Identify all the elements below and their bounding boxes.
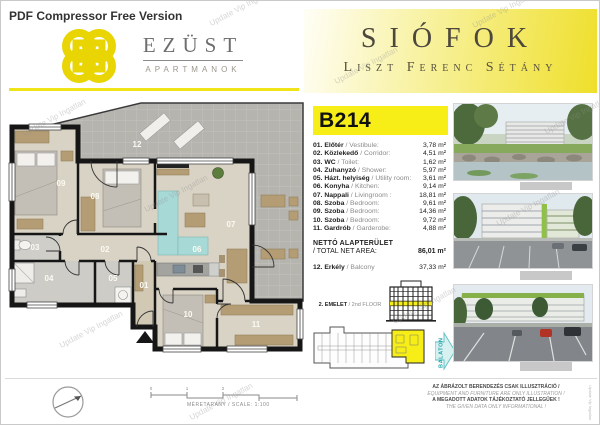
room-name-en: / Garderobe: <box>351 225 391 232</box>
photo-street-render <box>453 284 593 362</box>
scale-bar: 0 1 2 MÉRETARÁNY / SCALE: 1:100 <box>147 383 309 409</box>
room-row: 11. Gardrób / Garderobe: 4,88 m² <box>313 225 448 233</box>
room-name-hu: WC <box>322 159 335 166</box>
brand-subtitle: APARTMANOK <box>133 65 253 74</box>
floor-plan: 01 02 03 04 05 06 07 08 09 10 11 12 <box>5 99 312 376</box>
room-name-en: / Corridor: <box>358 150 390 157</box>
footer-divider <box>5 378 597 379</box>
svg-text:02: 02 <box>101 245 110 254</box>
room-name-en: / Kitchen: <box>349 183 379 190</box>
svg-text:04: 04 <box>45 274 54 283</box>
brand-knot-logo-icon <box>56 21 122 91</box>
room-name-hu: Szoba <box>322 217 344 224</box>
disclaimer-line: A MEGADOTT ADATOK TÁJÉKOZTATÓ JELLEGŰEK … <box>421 397 571 404</box>
room-area: 1,62 m² <box>423 159 448 167</box>
room-name-hu: Konyha <box>322 183 349 190</box>
room-name-hu: Szoba <box>322 208 344 215</box>
room-name-hu: Házt. helyiség <box>322 175 369 182</box>
room-name-en: / Shower: <box>356 167 387 174</box>
balcony-name-hu: Erkély <box>322 264 344 271</box>
floor-indicator: 2. EMELET / 2nd FLOOR <box>317 302 383 308</box>
room-area: 3,61 m² <box>423 175 448 183</box>
net-area-label-hu: NETTÓ ALAPTERÜLET <box>313 240 448 247</box>
svg-text:07: 07 <box>227 220 236 229</box>
location-header: SIÓFOK Liszt Ferenc Sétány <box>304 9 597 93</box>
city-title: SIÓFOK <box>304 23 597 55</box>
scale-label: MÉRETARÁNY / SCALE: 1:100 <box>187 401 270 408</box>
room-row: 08. Szoba / Bedroom: 9,61 m² <box>313 200 448 208</box>
balaton-label: BALATON <box>439 337 445 368</box>
photo-caption-bar <box>520 362 572 371</box>
room-area: 5,97 m² <box>423 167 448 175</box>
room-area: 4,51 m² <box>423 150 448 158</box>
room-name-en: / Bedroom: <box>344 208 379 215</box>
svg-text:10: 10 <box>184 310 193 319</box>
net-area-block: NETTÓ ALAPTERÜLET / TOTAL NET AREA: 86,0… <box>313 240 448 255</box>
photo-parking-render <box>453 193 593 269</box>
scale-tick: 1 <box>186 386 189 391</box>
net-area-value: 86,01 m² <box>418 248 448 255</box>
room-name-hu: Szoba <box>322 200 344 207</box>
room-row: 03. WC / Toilet: 1,62 m² <box>313 159 448 167</box>
room-name-en: / Bedroom: <box>344 217 379 224</box>
room-name-en: / Bedroom: <box>344 200 379 207</box>
room-row: 10. Szoba / Bedroom: 9,72 m² <box>313 217 448 225</box>
balcony-area: 37,33 m² <box>419 264 448 272</box>
room-row: 06. Konyha / Kitchen: 9,14 m² <box>313 183 448 191</box>
floor-key-plan <box>312 321 436 377</box>
street-subtitle: Liszt Ferenc Sétány <box>304 60 597 76</box>
header-divider <box>9 88 299 91</box>
svg-text:08: 08 <box>91 192 100 201</box>
balcony-row: 12. Erkély / Balcony 37,33 m² <box>313 264 448 272</box>
balcony-name-en: / Balcony <box>345 264 375 271</box>
room-area: 9,61 m² <box>423 200 448 208</box>
room-list: 01. Előtér / Vestibule: 3,78 m² 02. Közl… <box>313 142 448 233</box>
room-row: 05. Házt. helyiség / Utility room: 3,61 … <box>313 175 448 183</box>
room-name-hu: Zuhanyzó <box>322 167 356 174</box>
room-area: 9,72 m² <box>423 217 448 225</box>
svg-text:03: 03 <box>31 243 40 252</box>
net-area-label-en: / TOTAL NET AREA: <box>313 248 377 255</box>
room-name-en: / Livingroom : <box>349 192 392 199</box>
disclaimer: AZ ÁBRÁZOLT BERENDEZÉS CSAK ILLUSZTRÁCIÓ… <box>421 384 571 410</box>
unit-id-badge: B214 <box>313 106 448 135</box>
room-name-hu: Gardrób <box>322 225 351 232</box>
room-area: 14,36 m² <box>419 208 448 216</box>
room-name-en: / Vestibule: <box>344 142 379 149</box>
room-row: 07. Nappali / Livingroom : 18,81 m² <box>313 192 448 200</box>
room-area: 18,81 m² <box>419 192 448 200</box>
photo-lakeside-render <box>453 103 593 181</box>
room-row: 02. Közlekedő / Corridor: 4,51 m² <box>313 150 448 158</box>
photo-caption-bar <box>520 182 572 190</box>
floor-label-en: / 2nd FLOOR <box>347 302 381 308</box>
svg-text:01: 01 <box>140 281 149 290</box>
svg-text:12: 12 <box>133 140 142 149</box>
disclaimer-line: THE GIVEN DATA ONLY INFORMATIONAL ! <box>421 404 571 411</box>
svg-text:06: 06 <box>193 245 202 254</box>
building-elevation-sketch <box>384 278 438 324</box>
plan-entrance-arrow <box>136 331 154 343</box>
room-row: 01. Előtér / Vestibule: 3,78 m² <box>313 142 448 150</box>
scale-tick: 2 <box>222 386 225 391</box>
room-name-hu: Előtér <box>322 142 343 149</box>
disclaimer-line: AZ ÁBRÁZOLT BERENDEZÉS CSAK ILLUSZTRÁCIÓ… <box>421 384 571 391</box>
room-area: 3,78 m² <box>423 142 448 150</box>
svg-text:09: 09 <box>57 179 66 188</box>
brochure-page: Update Vip Ingatlan Update Vip Ingatlan … <box>0 0 600 425</box>
unit-info-panel: B214 01. Előtér / Vestibule: 3,78 m² 02.… <box>313 106 448 273</box>
floor-label-hu: 2. EMELET <box>319 302 347 308</box>
room-row: 04. Zuhanyzó / Shower: 5,97 m² <box>313 167 448 175</box>
svg-text:05: 05 <box>109 274 118 283</box>
north-compass-icon <box>47 383 91 421</box>
svg-text:11: 11 <box>252 320 261 329</box>
room-name-hu: Nappali <box>322 192 348 199</box>
room-row: 09. Szoba / Bedroom: 14,36 m² <box>313 208 448 216</box>
room-area: 9,14 m² <box>423 183 448 191</box>
room-name-en: / Toilet: <box>336 159 359 166</box>
photo-caption-bar <box>520 271 572 280</box>
watermark: Update Vip Ingatlan <box>208 0 274 28</box>
side-vertical-watermark: Update Vip Ingatlan <box>588 385 593 420</box>
room-area: 4,88 m² <box>423 225 448 233</box>
room-name-en: / Utility room: <box>370 175 412 182</box>
brand-name: EZÜST <box>143 33 243 61</box>
scale-tick: 0 <box>150 386 153 391</box>
room-number: 11. <box>313 225 322 232</box>
room-name-hu: Közlekedő <box>322 150 358 157</box>
brand-block: EZÜST APARTMANOK <box>133 33 253 74</box>
